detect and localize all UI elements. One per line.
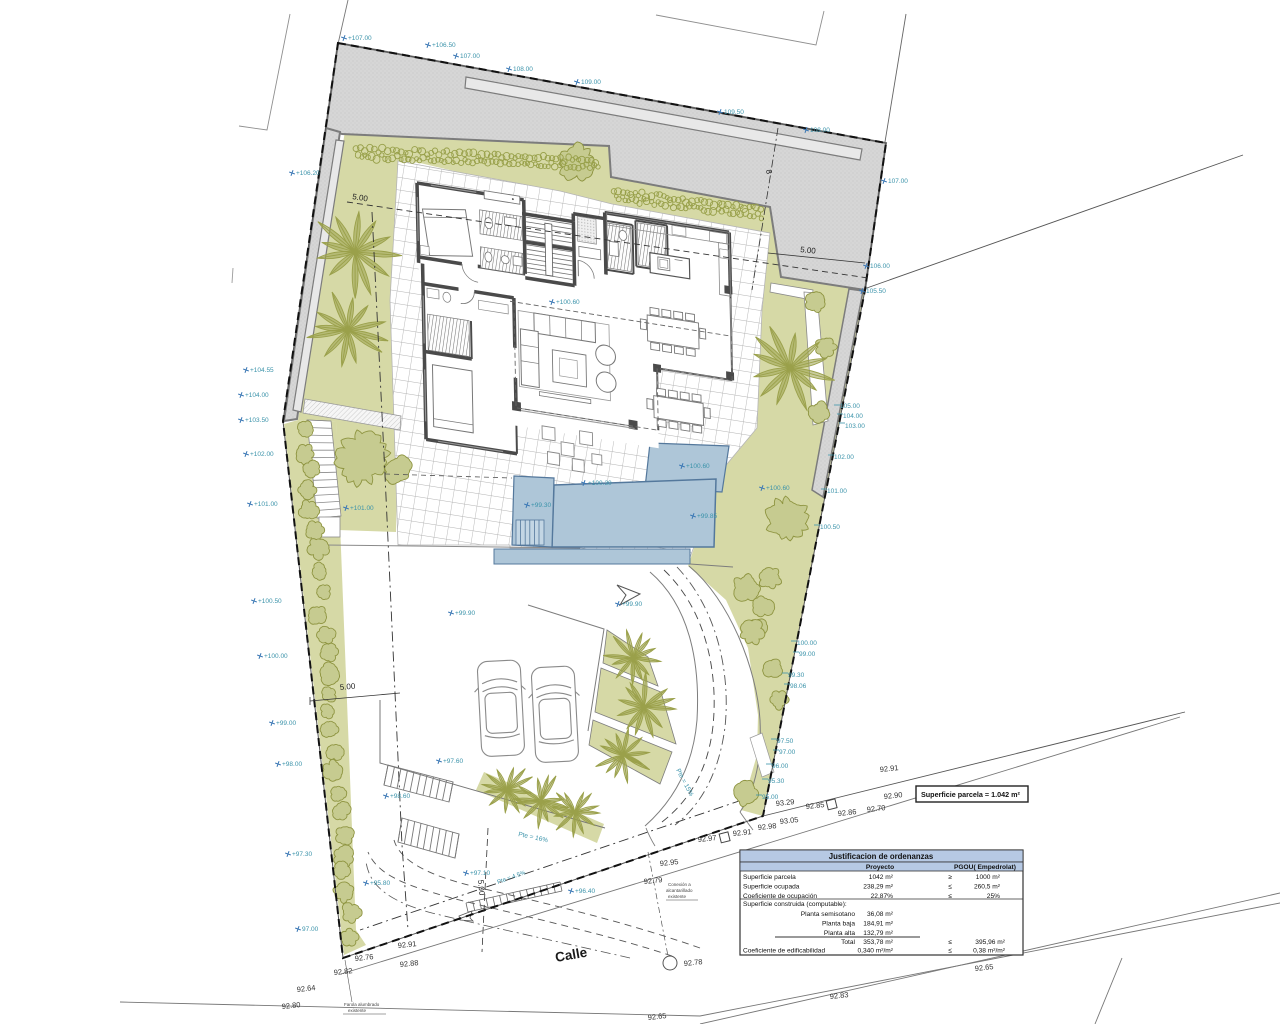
svg-text:105.50: 105.50 bbox=[866, 288, 886, 295]
svg-text:+102.00: +102.00 bbox=[250, 451, 274, 458]
svg-text:+97.30: +97.30 bbox=[292, 851, 312, 858]
svg-text:+99.90: +99.90 bbox=[622, 601, 642, 608]
svg-text:Farola alumbrado: Farola alumbrado bbox=[344, 1002, 380, 1007]
svg-text:+106.50: +106.50 bbox=[432, 42, 456, 49]
svg-text:132,79 m²: 132,79 m² bbox=[863, 930, 893, 937]
svg-text:5.00: 5.00 bbox=[800, 245, 817, 256]
svg-text:5.00: 5.00 bbox=[476, 879, 486, 896]
svg-text:97.00: 97.00 bbox=[302, 926, 319, 933]
svg-text:260,5 m²: 260,5 m² bbox=[974, 884, 1001, 891]
svg-text:109.50: 109.50 bbox=[724, 109, 744, 116]
svg-text:Planta baja: Planta baja bbox=[822, 921, 855, 928]
svg-text:+98.60: +98.60 bbox=[390, 793, 410, 800]
svg-text:100.00: 100.00 bbox=[797, 640, 817, 647]
svg-text:Superficie parcela = 1.042 m²: Superficie parcela = 1.042 m² bbox=[921, 790, 1020, 799]
svg-text:109.00: 109.00 bbox=[581, 79, 601, 86]
svg-text:Coeficiente de edificabilidad: Coeficiente de edificabilidad bbox=[743, 948, 825, 955]
svg-text:36,08 m²: 36,08 m² bbox=[867, 911, 894, 918]
svg-text:≤: ≤ bbox=[948, 884, 952, 891]
svg-text:+100.30: +100.30 bbox=[588, 480, 612, 487]
svg-text:100.50: 100.50 bbox=[820, 524, 840, 531]
svg-text:1000 m²: 1000 m² bbox=[976, 874, 1001, 881]
svg-text:95.00: 95.00 bbox=[762, 794, 779, 801]
svg-text:+97.10: +97.10 bbox=[470, 870, 490, 877]
svg-text:0,38 m²/m²: 0,38 m²/m² bbox=[973, 948, 1006, 955]
svg-text:108.00: 108.00 bbox=[513, 66, 533, 73]
svg-text:104.00: 104.00 bbox=[843, 413, 863, 420]
svg-text:238,29 m²: 238,29 m² bbox=[863, 884, 893, 891]
svg-text:98.06: 98.06 bbox=[790, 683, 807, 690]
svg-text:Planta alta: Planta alta bbox=[824, 930, 855, 937]
svg-text:+99.85: +99.85 bbox=[697, 513, 717, 520]
svg-text:105.00: 105.00 bbox=[840, 403, 860, 410]
svg-text:+103.50: +103.50 bbox=[245, 417, 269, 424]
svg-text:106.00: 106.00 bbox=[870, 263, 890, 270]
svg-text:alcantarillado: alcantarillado bbox=[666, 888, 693, 893]
svg-text:+100.50: +100.50 bbox=[258, 598, 282, 605]
svg-text:101.00: 101.00 bbox=[827, 488, 847, 495]
svg-text:+100.00: +100.00 bbox=[264, 653, 288, 660]
svg-text:existente: existente bbox=[348, 1008, 367, 1013]
svg-text:107.00: 107.00 bbox=[460, 53, 480, 60]
svg-text:+99.90: +99.90 bbox=[455, 610, 475, 617]
svg-text:99.30: 99.30 bbox=[788, 672, 805, 679]
svg-text:1042 m²: 1042 m² bbox=[869, 874, 894, 881]
svg-text:Proyecto: Proyecto bbox=[866, 864, 894, 871]
svg-text:107.00: 107.00 bbox=[888, 178, 908, 185]
svg-text:99.00: 99.00 bbox=[799, 651, 816, 658]
svg-text:395,96 m²: 395,96 m² bbox=[975, 939, 1005, 946]
svg-text:Justificacion de ordenanzas: Justificacion de ordenanzas bbox=[829, 852, 934, 861]
svg-text:PGOU( Empedrolat): PGOU( Empedrolat) bbox=[954, 864, 1016, 871]
svg-text:Total: Total bbox=[841, 939, 855, 946]
svg-text:+100.60: +100.60 bbox=[556, 299, 580, 306]
svg-text:0,340 m²/m²: 0,340 m²/m² bbox=[857, 948, 893, 955]
svg-text:+99.30: +99.30 bbox=[531, 502, 551, 509]
svg-text:Superficie parcela: Superficie parcela bbox=[743, 874, 796, 881]
svg-text:96.00: 96.00 bbox=[772, 763, 789, 770]
svg-text:+96.40: +96.40 bbox=[575, 888, 595, 895]
svg-text:+104.55: +104.55 bbox=[250, 367, 274, 374]
svg-text:Superficie ocupada: Superficie ocupada bbox=[743, 884, 800, 891]
svg-text:+107.00: +107.00 bbox=[348, 35, 372, 42]
svg-text:+98.00: +98.00 bbox=[282, 761, 302, 768]
svg-text:102.00: 102.00 bbox=[834, 454, 854, 461]
svg-text:+101.00: +101.00 bbox=[350, 505, 374, 512]
svg-text:+97.60: +97.60 bbox=[443, 758, 463, 765]
svg-text:+104.00: +104.00 bbox=[245, 392, 269, 399]
svg-text:5.00: 5.00 bbox=[339, 682, 356, 692]
svg-text:95.30: 95.30 bbox=[768, 778, 785, 785]
svg-text:103.00: 103.00 bbox=[845, 423, 865, 430]
svg-text:Conexión a: Conexión a bbox=[668, 882, 691, 887]
svg-text:Planta semisotano: Planta semisotano bbox=[801, 911, 856, 918]
svg-text:≤: ≤ bbox=[948, 939, 952, 946]
svg-text:108.00: 108.00 bbox=[810, 127, 830, 134]
svg-text:97.00: 97.00 bbox=[779, 749, 796, 756]
svg-text:≤: ≤ bbox=[948, 948, 952, 955]
svg-text:353,78 m²: 353,78 m² bbox=[863, 939, 893, 946]
svg-text:184,91 m²: 184,91 m² bbox=[863, 921, 893, 928]
svg-text:+99.00: +99.00 bbox=[276, 720, 296, 727]
svg-text:+95.80: +95.80 bbox=[370, 880, 390, 887]
svg-text:+106.20: +106.20 bbox=[296, 170, 320, 177]
svg-text:+100.60: +100.60 bbox=[686, 463, 710, 470]
svg-text:≥: ≥ bbox=[948, 874, 952, 881]
svg-text:Superficie construida (computa: Superficie construida (computable): bbox=[743, 901, 847, 908]
svg-text:+101.00: +101.00 bbox=[254, 501, 278, 508]
svg-text:+100.60: +100.60 bbox=[766, 485, 790, 492]
svg-text:existente: existente bbox=[668, 894, 687, 899]
svg-text:97.50: 97.50 bbox=[777, 738, 794, 745]
